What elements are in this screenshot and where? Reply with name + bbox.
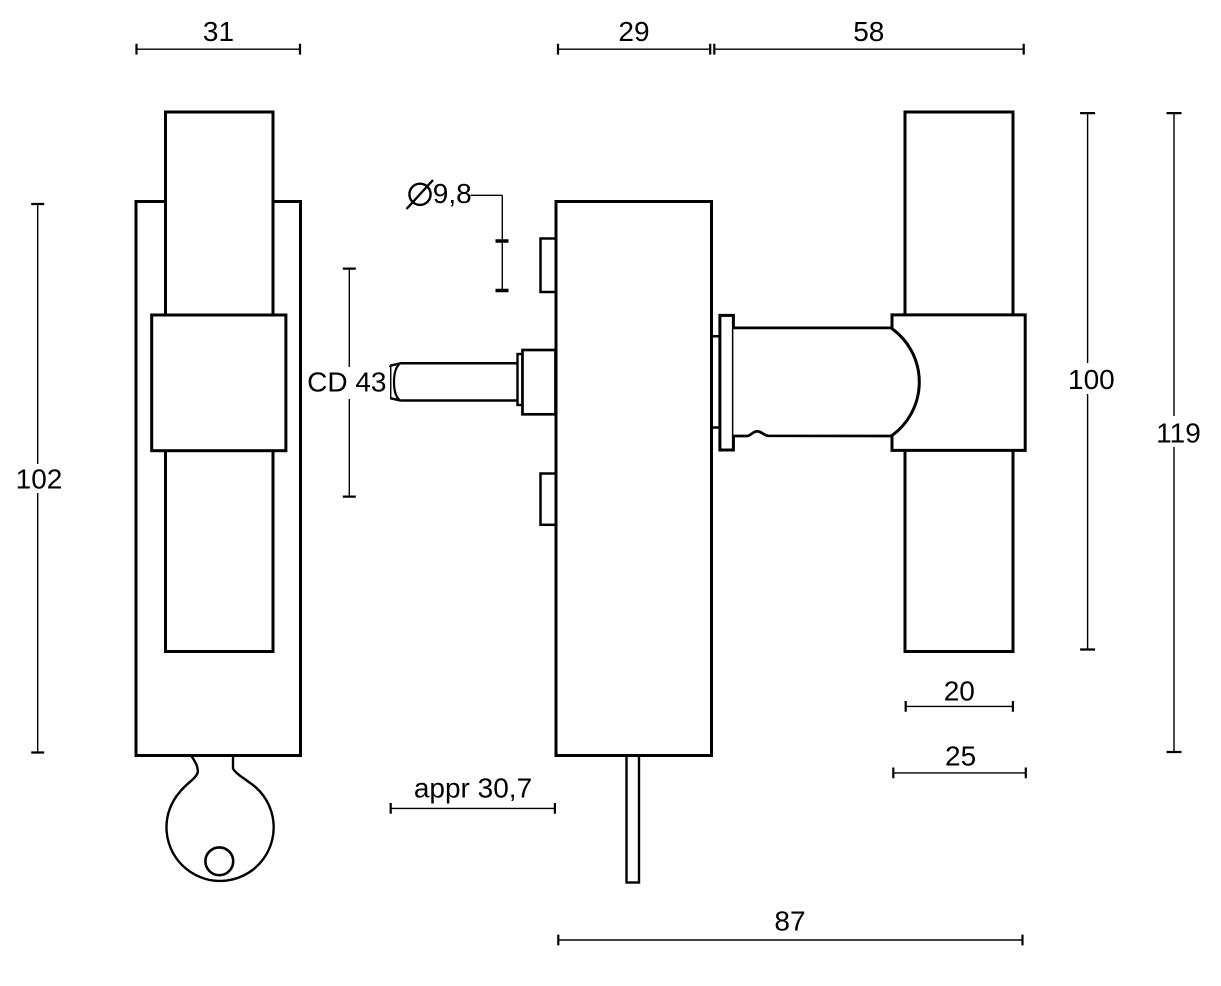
- svg-text:119: 119: [1156, 418, 1201, 449]
- svg-text:102: 102: [16, 464, 63, 495]
- svg-text:appr 30,7: appr 30,7: [414, 773, 532, 804]
- svg-text:31: 31: [203, 16, 234, 47]
- svg-text:58: 58: [853, 16, 884, 47]
- svg-text:87: 87: [774, 906, 805, 937]
- svg-text:CD 43: CD 43: [307, 367, 386, 398]
- svg-text:20: 20: [944, 676, 975, 707]
- svg-text:29: 29: [618, 16, 649, 47]
- svg-text:9,8: 9,8: [433, 178, 472, 209]
- svg-text:100: 100: [1068, 364, 1115, 395]
- svg-text:25: 25: [945, 741, 976, 772]
